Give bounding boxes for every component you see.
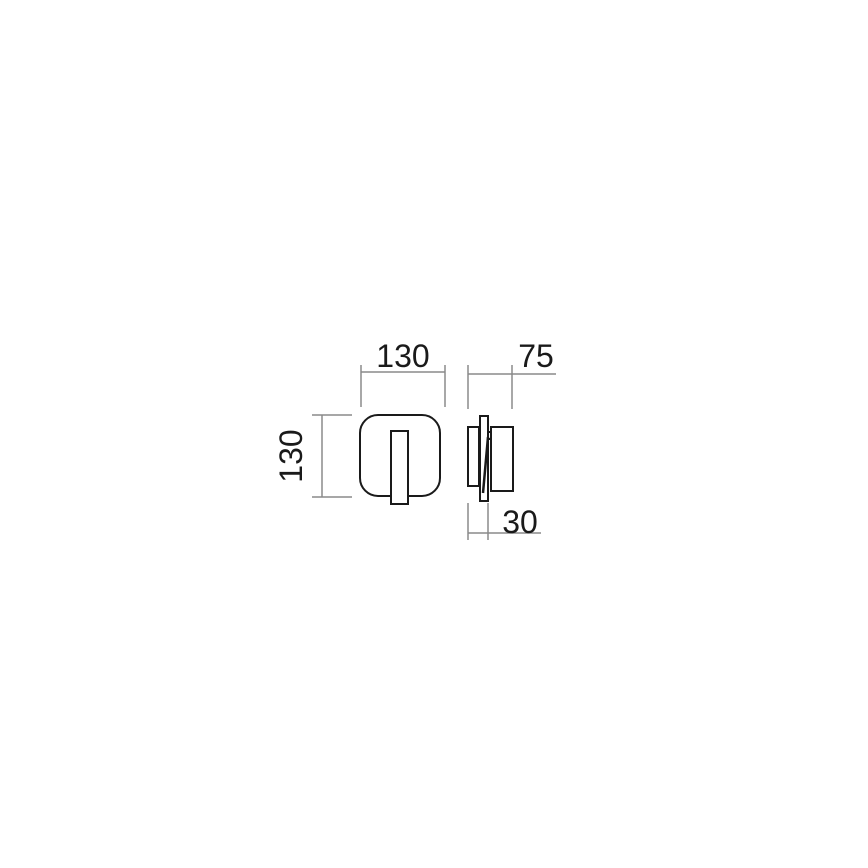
dim-label-total-depth: 75 (512, 340, 560, 372)
front-view-blade (390, 430, 409, 505)
side-view-lamp-head (490, 426, 514, 492)
technical-drawing-canvas: 130 130 75 30 (0, 0, 868, 868)
dim-label-front-width: 130 (361, 340, 445, 372)
side-view-blade (479, 415, 489, 502)
dim-label-plate-depth: 30 (496, 506, 544, 538)
